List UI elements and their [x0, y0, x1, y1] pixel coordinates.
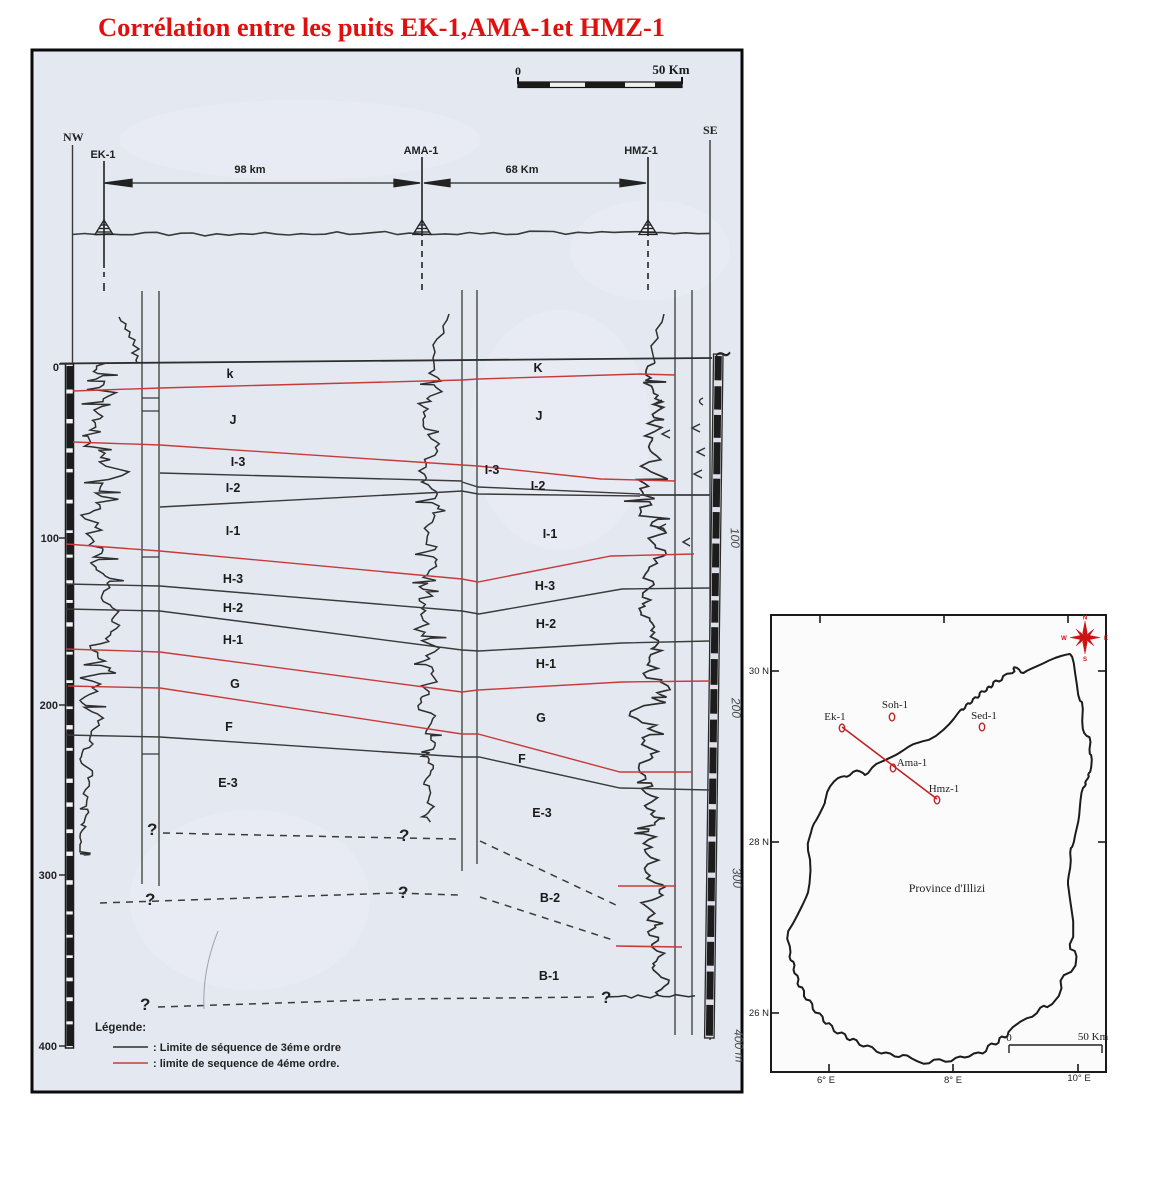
svg-text:Ama-1: Ama-1 [897, 757, 928, 769]
svg-text:Hmz-1: Hmz-1 [929, 783, 960, 795]
svg-text:100: 100 [41, 533, 59, 545]
svg-text:J: J [230, 413, 237, 427]
svg-text:?: ? [398, 883, 408, 902]
svg-text:E-3: E-3 [218, 776, 238, 790]
svg-text:G: G [230, 677, 240, 691]
svg-text:H-1: H-1 [223, 633, 243, 647]
svg-text:400 m: 400 m [731, 1029, 746, 1063]
svg-text:K: K [533, 361, 542, 375]
svg-text:?: ? [399, 826, 409, 845]
svg-text:S: S [1083, 657, 1087, 663]
svg-text:50 Km: 50 Km [652, 62, 689, 77]
svg-text:6° E: 6° E [817, 1075, 835, 1086]
svg-text:G: G [536, 711, 546, 725]
svg-text:I-1: I-1 [543, 527, 558, 541]
svg-text:10° E: 10° E [1067, 1073, 1090, 1084]
svg-text:NW: NW [63, 130, 84, 144]
svg-text:AMA-1: AMA-1 [404, 145, 439, 157]
svg-text:Province d'Illizi: Province d'Illizi [909, 881, 986, 895]
svg-text:B-2: B-2 [540, 891, 560, 905]
svg-text:I-1: I-1 [226, 524, 241, 538]
svg-text:200: 200 [40, 700, 58, 712]
svg-text:E: E [1104, 636, 1108, 642]
svg-text:300: 300 [730, 868, 745, 889]
svg-text:: limite de sequence de 4éme: : limite de sequence de 4éme ordre. [153, 1058, 339, 1070]
svg-text:50 Km: 50 Km [1078, 1031, 1109, 1043]
svg-text:E-3: E-3 [532, 806, 552, 820]
svg-text:H-2: H-2 [223, 601, 243, 615]
svg-text:F: F [518, 752, 526, 766]
svg-text:28 N: 28 N [749, 837, 769, 848]
svg-text:Corrélation entre les puits EK: Corrélation entre les puits EK-1,AMA-1et… [98, 13, 665, 42]
svg-text:?: ? [145, 890, 155, 909]
svg-text:26 N: 26 N [749, 1008, 769, 1019]
svg-text:68 Km: 68 Km [505, 164, 538, 176]
svg-text:F: F [225, 720, 233, 734]
svg-text:I-2: I-2 [531, 479, 546, 493]
svg-text:?: ? [601, 988, 611, 1007]
svg-text:H-3: H-3 [535, 579, 555, 593]
svg-text:HMZ-1: HMZ-1 [624, 145, 658, 157]
svg-text:H-3: H-3 [223, 572, 243, 586]
svg-text:98 km: 98 km [234, 164, 265, 176]
svg-text:Sed-1: Sed-1 [971, 710, 997, 722]
svg-text:300: 300 [39, 870, 57, 882]
svg-text:Légende:: Légende: [95, 1022, 146, 1034]
svg-text:30 N: 30 N [749, 666, 769, 677]
svg-text:?: ? [147, 820, 157, 839]
svg-text:H-2: H-2 [536, 617, 556, 631]
svg-text:0: 0 [1006, 1032, 1012, 1044]
svg-text:B-1: B-1 [539, 969, 559, 983]
svg-text:SE: SE [703, 123, 718, 137]
svg-text:400: 400 [39, 1041, 57, 1053]
svg-text:I-3: I-3 [231, 455, 246, 469]
svg-text:I-3: I-3 [485, 463, 500, 477]
svg-text:200: 200 [729, 697, 744, 719]
svg-text:0: 0 [515, 64, 521, 78]
svg-text:Soh-1: Soh-1 [882, 699, 908, 711]
svg-text:k: k [227, 367, 234, 381]
svg-text:EK-1: EK-1 [90, 149, 115, 161]
svg-text:I-2: I-2 [226, 481, 241, 495]
svg-text:8° E: 8° E [944, 1075, 962, 1086]
svg-text:N: N [1083, 616, 1087, 622]
svg-text:H-1: H-1 [536, 657, 556, 671]
svg-text:0: 0 [53, 362, 59, 374]
svg-text:100: 100 [728, 528, 743, 549]
svg-text:: Limite de séquence de 3ém e: : Limite de séquence de 3ém e ordre [153, 1042, 341, 1054]
svg-text:W: W [1061, 636, 1067, 642]
svg-text:?: ? [140, 995, 150, 1014]
svg-text:Ek-1: Ek-1 [824, 711, 845, 723]
svg-text:J: J [536, 409, 543, 423]
